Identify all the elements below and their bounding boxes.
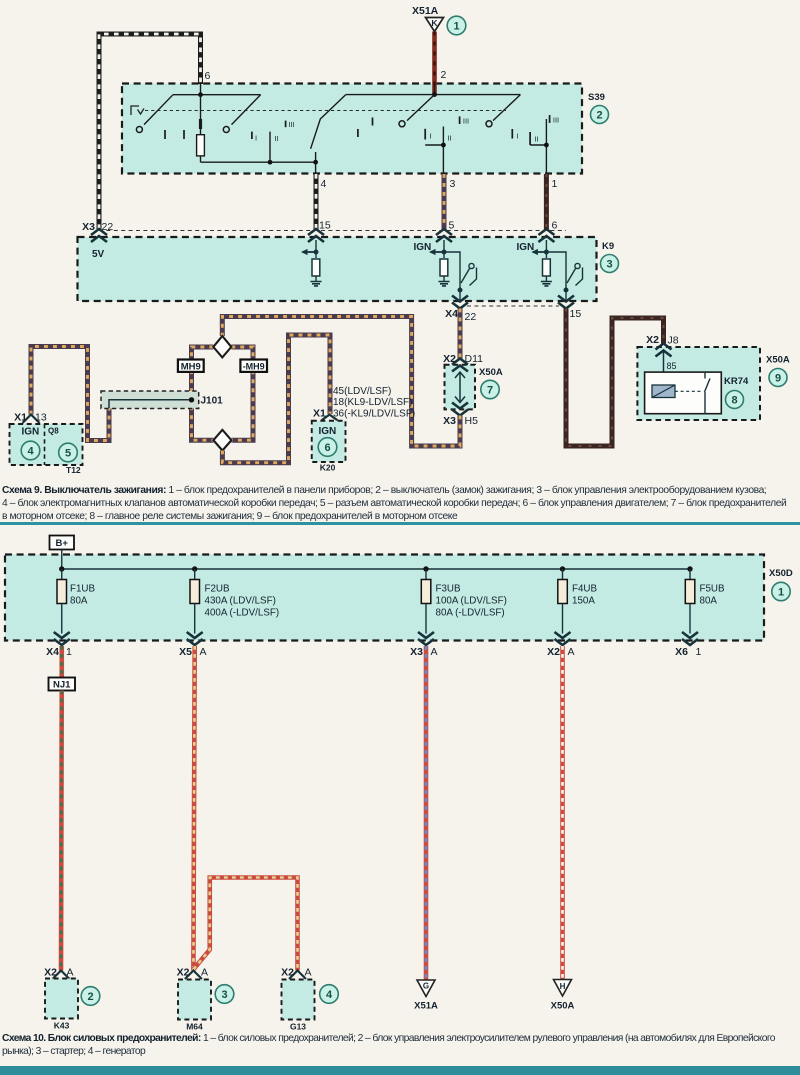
svg-text:X3: X3: [82, 221, 95, 233]
svg-text:45(LDV/LSF): 45(LDV/LSF): [333, 386, 391, 397]
svg-text:6: 6: [205, 70, 211, 82]
svg-text:80A: 80A: [700, 596, 718, 607]
svg-text:15: 15: [570, 308, 582, 320]
svg-text:X51A: X51A: [414, 1001, 438, 1012]
svg-text:B+: B+: [56, 538, 69, 549]
svg-text:400A (-LDV/LSF): 400A (-LDV/LSF): [205, 608, 280, 619]
svg-text:2: 2: [87, 991, 93, 1003]
svg-text:T12: T12: [66, 465, 81, 475]
svg-text:6: 6: [324, 442, 330, 454]
svg-text:X6: X6: [675, 646, 688, 658]
svg-text:X50A: X50A: [479, 367, 503, 378]
svg-text:I: I: [430, 132, 432, 141]
svg-text:KR74: KR74: [724, 376, 749, 387]
svg-text:IGN: IGN: [414, 242, 432, 253]
svg-text:X5: X5: [179, 646, 192, 658]
svg-text:5: 5: [65, 448, 71, 460]
svg-text:85: 85: [667, 361, 677, 371]
svg-text:3: 3: [450, 178, 456, 190]
svg-text:A: A: [305, 967, 312, 979]
svg-text:X2: X2: [443, 353, 456, 365]
svg-text:4: 4: [321, 178, 327, 190]
svg-text:NJ1: NJ1: [53, 680, 71, 691]
svg-text:X1: X1: [14, 412, 27, 424]
svg-text:IGN: IGN: [22, 427, 40, 438]
svg-text:80A: 80A: [70, 596, 88, 607]
svg-text:H: H: [560, 982, 566, 991]
svg-text:F3UB: F3UB: [436, 584, 462, 595]
svg-text:2: 2: [441, 69, 447, 81]
svg-text:5: 5: [449, 220, 455, 232]
svg-text:I: I: [255, 134, 257, 143]
svg-text:1: 1: [453, 21, 459, 33]
svg-text:8: 8: [731, 395, 737, 407]
svg-text:III: III: [463, 117, 469, 126]
svg-text:X2: X2: [547, 646, 560, 658]
svg-text:X50D: X50D: [769, 568, 793, 579]
svg-text:X2: X2: [281, 967, 294, 979]
svg-text:430A (LDV/LSF): 430A (LDV/LSF): [205, 596, 276, 607]
svg-text:18(KL9-LDV/LSF): 18(KL9-LDV/LSF): [333, 397, 412, 408]
svg-text:100A (LDV/LSF): 100A (LDV/LSF): [436, 596, 507, 607]
svg-text:H5: H5: [465, 415, 479, 427]
svg-text:K43: K43: [54, 1021, 70, 1031]
svg-text:X4: X4: [445, 308, 458, 320]
svg-text:X2: X2: [646, 334, 659, 346]
svg-text:6: 6: [552, 220, 558, 232]
svg-text:80A (-LDV/LSF): 80A (-LDV/LSF): [436, 608, 505, 619]
svg-text:X3: X3: [443, 415, 456, 427]
svg-text:II: II: [535, 135, 539, 144]
svg-text:J8: J8: [668, 335, 679, 347]
svg-text:3: 3: [221, 989, 227, 1001]
svg-text:S39: S39: [588, 92, 605, 103]
svg-text:4: 4: [326, 989, 333, 1001]
svg-text:36(-KL9/LDV/LSF): 36(-KL9/LDV/LSF): [333, 409, 415, 420]
svg-text:150A: 150A: [572, 596, 595, 607]
svg-text:III: III: [553, 116, 559, 125]
svg-text:13: 13: [35, 412, 47, 424]
svg-text:7: 7: [487, 385, 493, 397]
svg-text:X2: X2: [44, 967, 57, 979]
svg-text:K20: K20: [320, 463, 336, 473]
svg-text:1: 1: [696, 646, 702, 658]
svg-text:Q8: Q8: [48, 427, 59, 436]
svg-text:X51A: X51A: [412, 5, 439, 17]
svg-text:G: G: [423, 982, 429, 991]
svg-text:IGN: IGN: [319, 426, 337, 437]
svg-text:2: 2: [596, 110, 602, 122]
svg-text:1: 1: [778, 587, 784, 599]
svg-text:J101: J101: [201, 396, 224, 407]
svg-text:-MH9: -MH9: [243, 361, 265, 371]
svg-text:A: A: [200, 646, 207, 658]
svg-text:5V: 5V: [92, 249, 105, 260]
svg-text:X3: X3: [410, 646, 423, 658]
svg-text:F2UB: F2UB: [205, 584, 231, 595]
svg-text:A: A: [201, 967, 208, 979]
svg-text:A: A: [568, 646, 575, 658]
svg-text:22: 22: [102, 221, 114, 233]
svg-text:X2: X2: [177, 967, 190, 979]
svg-text:MH9: MH9: [181, 361, 201, 372]
svg-text:A: A: [431, 646, 438, 658]
svg-text:G13: G13: [290, 1022, 306, 1032]
svg-text:II: II: [275, 134, 279, 143]
svg-text:1: 1: [66, 646, 72, 658]
svg-text:II: II: [448, 134, 452, 143]
svg-text:X1: X1: [313, 408, 326, 420]
svg-text:F4UB: F4UB: [572, 584, 598, 595]
svg-text:F5UB: F5UB: [700, 584, 726, 595]
svg-text:III: III: [289, 120, 295, 129]
svg-text:4: 4: [27, 446, 34, 458]
svg-text:IGN: IGN: [517, 242, 535, 253]
svg-text:K9: K9: [602, 241, 614, 252]
svg-text:A: A: [67, 967, 74, 979]
svg-text:M64: M64: [186, 1022, 203, 1032]
svg-text:I: I: [517, 132, 519, 141]
svg-text:22: 22: [465, 311, 477, 323]
svg-text:15: 15: [319, 220, 331, 232]
svg-text:1: 1: [552, 178, 558, 190]
svg-text:X4: X4: [46, 646, 59, 658]
svg-text:9: 9: [775, 373, 781, 385]
svg-text:K: K: [431, 18, 438, 28]
svg-text:D11: D11: [465, 353, 484, 365]
svg-text:X50A: X50A: [551, 1001, 575, 1012]
svg-text:X50A: X50A: [766, 355, 790, 366]
svg-text:3: 3: [606, 259, 612, 271]
svg-text:F1UB: F1UB: [70, 584, 96, 595]
